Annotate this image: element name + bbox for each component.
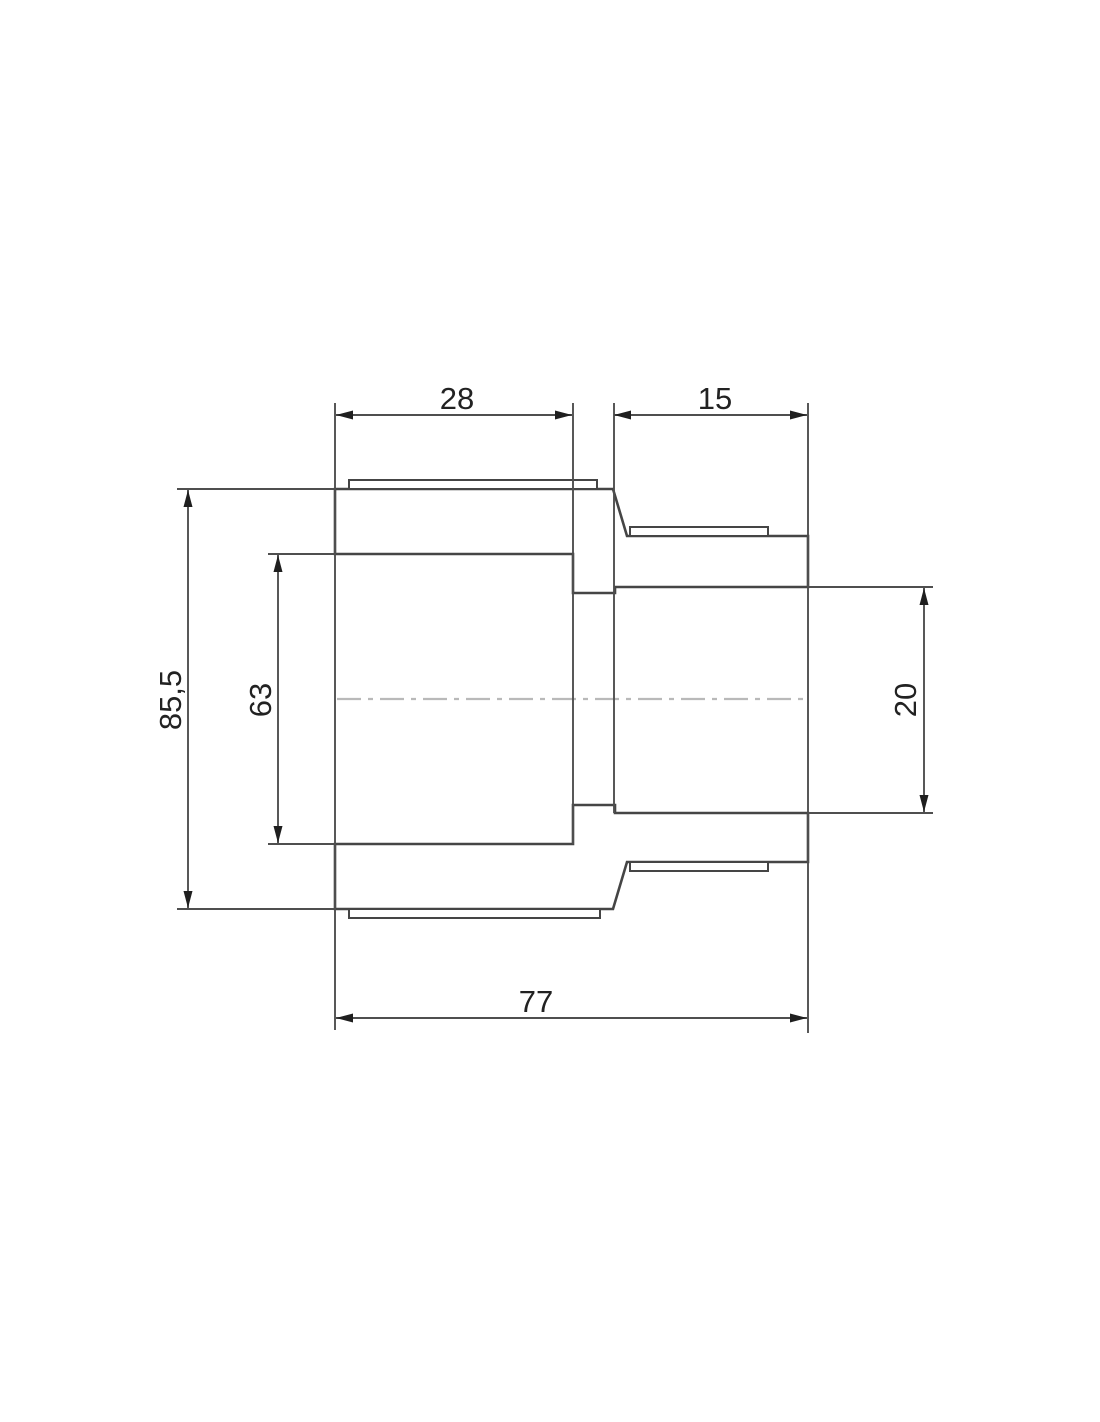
arrow-63-bottom bbox=[274, 826, 283, 843]
dimension-lines bbox=[188, 415, 924, 1018]
dimension-arrows bbox=[184, 411, 929, 1023]
dim-label-overall-length: 77 bbox=[519, 984, 553, 1019]
dim-label-right-bore-diameter: 20 bbox=[888, 683, 923, 717]
arrow-20-bottom bbox=[920, 795, 929, 812]
arrow-28-right bbox=[555, 411, 572, 420]
big-end-bottom-lip bbox=[349, 909, 600, 918]
arrow-85-5-bottom bbox=[184, 891, 193, 908]
arrow-20-top bbox=[920, 588, 929, 605]
arrow-15-right bbox=[790, 411, 807, 420]
top-wall-section bbox=[335, 489, 808, 593]
arrow-85-5-top bbox=[184, 490, 193, 507]
dim-label-left-bore-diameter: 63 bbox=[243, 683, 278, 717]
arrow-77-left bbox=[336, 1014, 353, 1023]
drawing-page: 28 15 77 85,5 63 20 bbox=[0, 0, 1100, 1422]
small-end-top-lip bbox=[630, 527, 768, 536]
big-end-top-lip bbox=[349, 480, 597, 489]
dim-label-outer-diameter: 85,5 bbox=[153, 670, 188, 730]
arrow-15-left bbox=[614, 411, 631, 420]
technical-drawing-canvas: 28 15 77 85,5 63 20 bbox=[0, 0, 1100, 1422]
small-end-bottom-lip bbox=[630, 862, 768, 871]
dim-label-left-socket-depth: 28 bbox=[440, 381, 474, 416]
dim-label-right-socket-depth: 15 bbox=[698, 381, 732, 416]
arrow-28-left bbox=[336, 411, 353, 420]
extension-lines bbox=[177, 403, 933, 1033]
bottom-wall-section bbox=[335, 805, 808, 909]
arrow-63-top bbox=[274, 555, 283, 572]
arrow-77-right bbox=[790, 1014, 807, 1023]
